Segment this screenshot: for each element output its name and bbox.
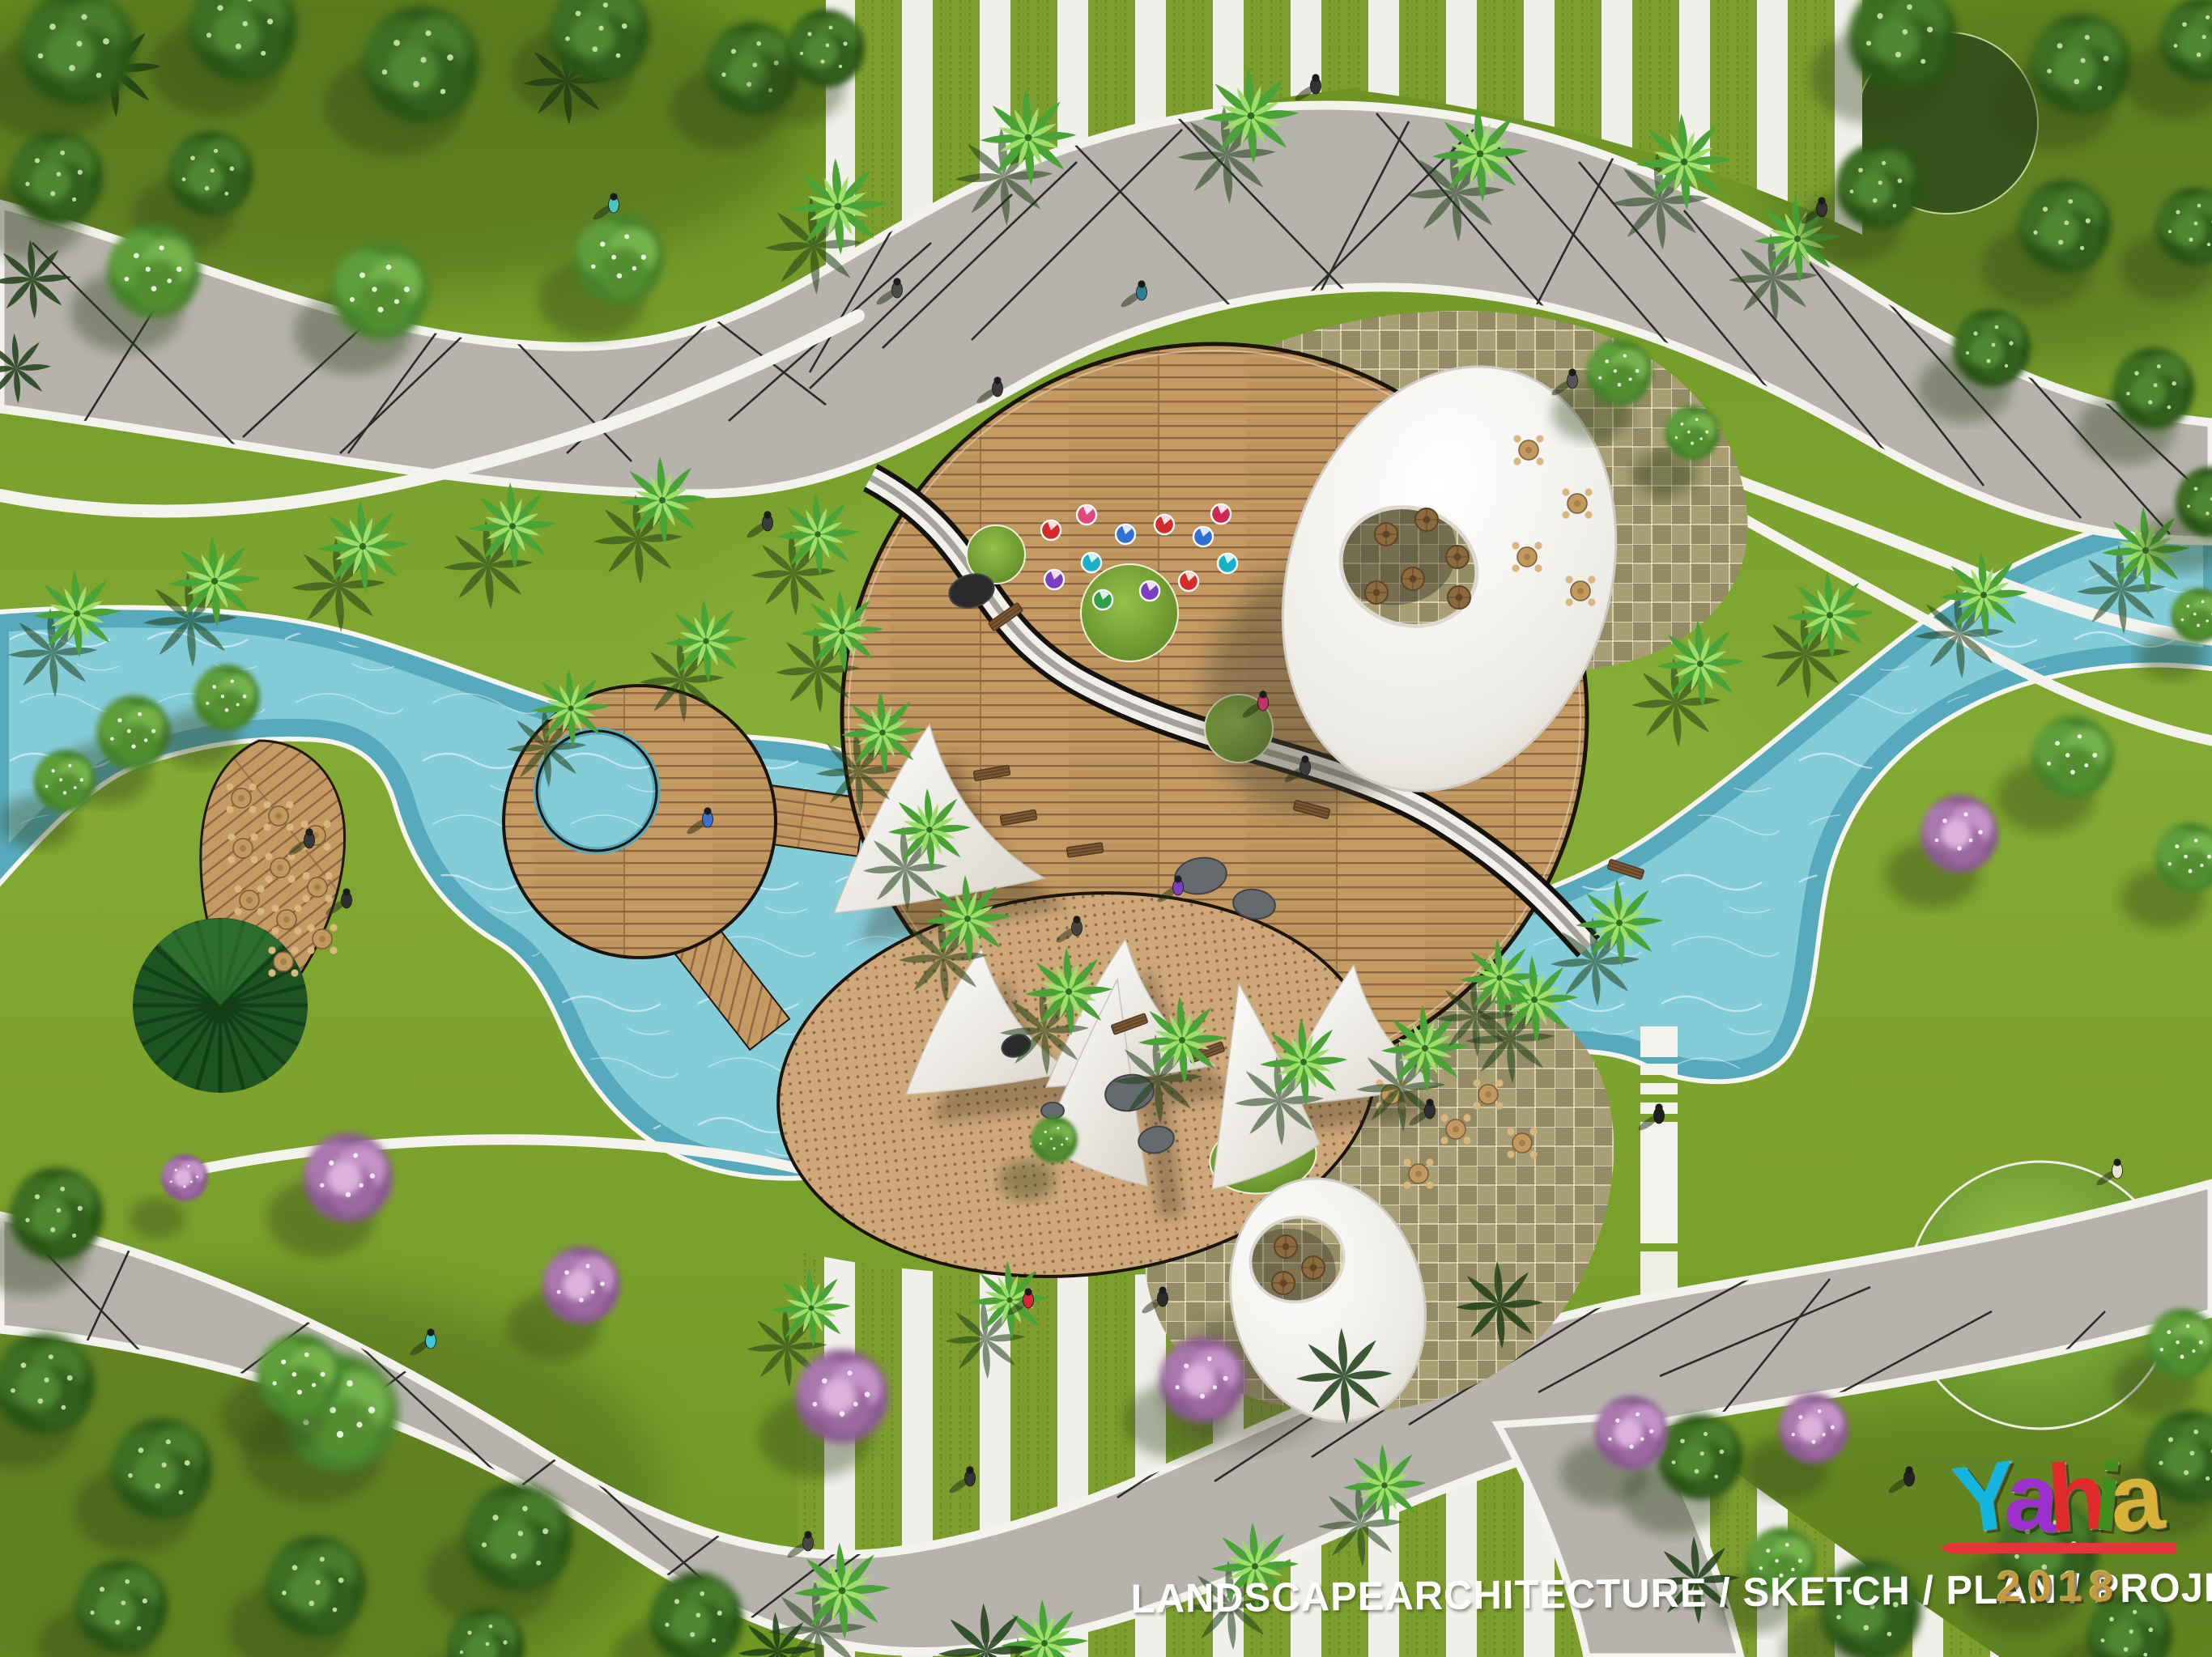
logo-underline: [1940, 1543, 2176, 1553]
caption: LANDSCAPEARCHITECTURE / SKETCH / PLAN / …: [1130, 1566, 2051, 1622]
landscape-plan-render: LANDSCAPEARCHITECTURE / SKETCH / PLAN / …: [0, 0, 2212, 1657]
logo-letters: Yahia: [1933, 1415, 2183, 1543]
logo-letter: a: [2106, 1450, 2167, 1544]
logo-year: 2018: [1933, 1561, 2183, 1612]
fan-pavilion: [133, 918, 308, 1093]
site-plan-canvas: [0, 0, 2212, 1657]
studio-logo: Yahia 2018: [1933, 1415, 2183, 1612]
